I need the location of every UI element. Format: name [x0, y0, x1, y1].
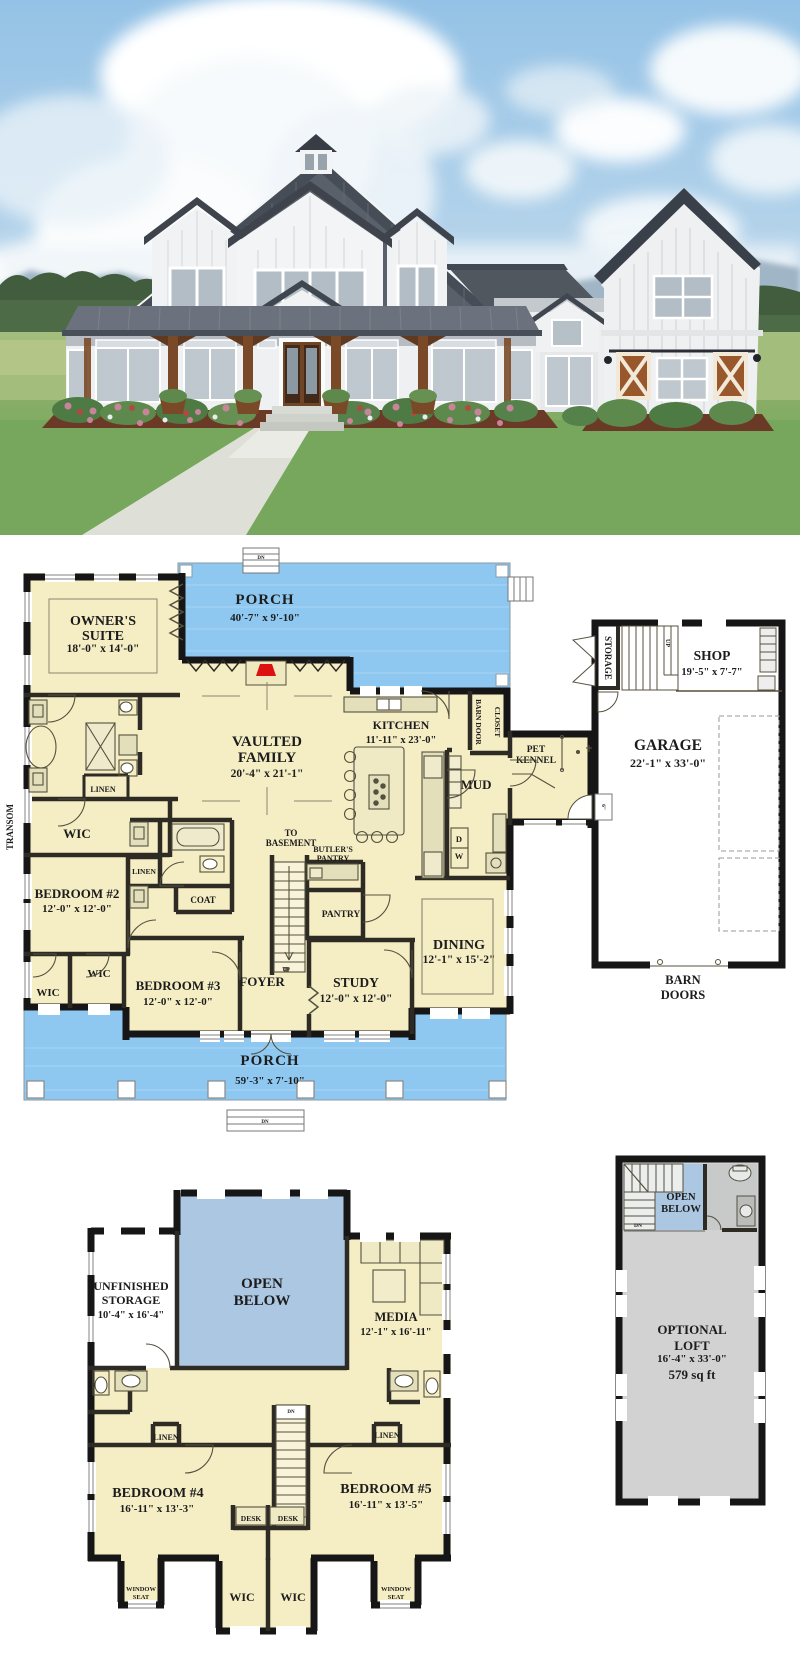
svg-text:PANTRY: PANTRY: [322, 910, 361, 920]
svg-text:LOFT: LOFT: [674, 1338, 710, 1353]
svg-text:DESK: DESK: [278, 1514, 299, 1523]
svg-text:12'-1" x 16'-11": 12'-1" x 16'-11": [360, 1327, 431, 1338]
svg-text:GARAGE: GARAGE: [634, 737, 702, 754]
svg-text:BASEMENT: BASEMENT: [266, 838, 317, 848]
svg-text:WIC: WIC: [36, 987, 59, 999]
svg-text:VAULTED: VAULTED: [232, 734, 302, 750]
svg-text:12'-0" x 12'-0": 12'-0" x 12'-0": [143, 996, 213, 1008]
svg-text:MUD: MUD: [460, 777, 491, 792]
svg-text:DESK: DESK: [241, 1514, 262, 1523]
svg-text:STUDY: STUDY: [333, 975, 379, 990]
svg-text:BARN: BARN: [665, 973, 700, 987]
svg-text:40'-7" x 9'-10": 40'-7" x 9'-10": [230, 612, 300, 624]
svg-text:19'-5" x 7'-7": 19'-5" x 7'-7": [681, 667, 742, 678]
svg-text:PORCH: PORCH: [235, 592, 294, 608]
svg-text:20'-4" x 21'-1": 20'-4" x 21'-1": [231, 768, 304, 780]
svg-text:DN: DN: [287, 1410, 295, 1415]
svg-text:DOORS: DOORS: [661, 988, 706, 1002]
svg-text:10'-4" x 16'-4": 10'-4" x 16'-4": [98, 1310, 165, 1321]
svg-text:WIC: WIC: [87, 968, 110, 980]
svg-text:DN: DN: [261, 1120, 269, 1125]
svg-text:UP: UP: [283, 968, 290, 973]
svg-text:KITCHEN: KITCHEN: [373, 718, 430, 732]
svg-text:W: W: [455, 851, 464, 861]
svg-text:COAT: COAT: [190, 895, 215, 905]
svg-text:OPEN: OPEN: [666, 1192, 696, 1203]
svg-text:SHOP: SHOP: [694, 648, 731, 663]
svg-text:22'-1" x 33'-0": 22'-1" x 33'-0": [630, 756, 706, 770]
svg-text:D: D: [456, 834, 462, 844]
svg-text:OPEN: OPEN: [241, 1276, 283, 1292]
svg-text:12'-1" x 15'-2": 12'-1" x 15'-2": [423, 954, 496, 966]
svg-text:18'-0" x 14'-0": 18'-0" x 14'-0": [67, 643, 140, 655]
svg-text:BELOW: BELOW: [661, 1204, 701, 1215]
svg-text:SEAT: SEAT: [133, 1594, 150, 1601]
svg-text:PORCH: PORCH: [240, 1053, 299, 1069]
svg-text:6": 6": [600, 804, 606, 810]
svg-text:TRANSOM: TRANSOM: [5, 804, 15, 851]
svg-text:12'-0" x 12'-0": 12'-0" x 12'-0": [42, 903, 112, 915]
svg-text:TO: TO: [285, 828, 298, 838]
svg-text:FAMILY: FAMILY: [238, 750, 297, 766]
svg-text:BELOW: BELOW: [234, 1293, 291, 1309]
svg-text:STORAGE: STORAGE: [603, 636, 613, 680]
svg-text:BEDROOM #2: BEDROOM #2: [35, 886, 120, 901]
svg-text:LINEN: LINEN: [374, 1431, 400, 1440]
svg-text:MEDIA: MEDIA: [374, 1310, 417, 1324]
svg-text:BARN DOOR: BARN DOOR: [474, 699, 483, 745]
svg-text:LINEN: LINEN: [132, 867, 156, 876]
svg-text:DINING: DINING: [433, 938, 485, 953]
svg-text:WIC: WIC: [63, 826, 90, 841]
svg-text:OPTIONAL: OPTIONAL: [657, 1322, 727, 1337]
svg-text:LINEN: LINEN: [90, 785, 116, 794]
svg-text:LINEN: LINEN: [153, 1433, 179, 1442]
svg-text:BEDROOM #5: BEDROOM #5: [340, 1482, 431, 1497]
svg-text:16'-4" x 33'-0": 16'-4" x 33'-0": [657, 1353, 727, 1365]
svg-text:UNFINISHED: UNFINISHED: [93, 1279, 169, 1293]
svg-text:PANTRY: PANTRY: [317, 854, 350, 863]
svg-text:UP: UP: [664, 639, 670, 647]
svg-text:SEAT: SEAT: [388, 1594, 405, 1601]
svg-text:16'-11" x 13'-3": 16'-11" x 13'-3": [120, 1503, 195, 1515]
svg-text:BUTLER'S: BUTLER'S: [313, 845, 353, 854]
svg-text:PET: PET: [527, 745, 546, 755]
svg-text:WINDOW: WINDOW: [126, 1586, 156, 1593]
svg-text:BEDROOM #4: BEDROOM #4: [112, 1486, 203, 1501]
svg-text:WIC: WIC: [229, 1590, 254, 1604]
svg-text:WINDOW: WINDOW: [381, 1586, 411, 1593]
svg-text:579 sq ft: 579 sq ft: [669, 1367, 717, 1382]
svg-text:12'-0" x 12'-0": 12'-0" x 12'-0": [320, 993, 393, 1005]
svg-text:SUITE: SUITE: [82, 629, 124, 644]
svg-text:OWNER'S: OWNER'S: [70, 614, 136, 629]
svg-text:DN: DN: [634, 1223, 642, 1229]
svg-text:16'-11" x 13'-5": 16'-11" x 13'-5": [349, 1499, 424, 1511]
svg-text:CLOSET: CLOSET: [493, 707, 502, 737]
svg-text:FOYER: FOYER: [239, 974, 285, 989]
svg-text:11'-11" x 23'-0": 11'-11" x 23'-0": [366, 735, 437, 746]
svg-text:STORAGE: STORAGE: [102, 1293, 160, 1307]
svg-text:DN: DN: [257, 556, 265, 561]
svg-text:BEDROOM #3: BEDROOM #3: [136, 978, 221, 993]
svg-text:59'-3" x 7'-10": 59'-3" x 7'-10": [235, 1075, 305, 1087]
svg-text:WIC: WIC: [280, 1590, 305, 1604]
